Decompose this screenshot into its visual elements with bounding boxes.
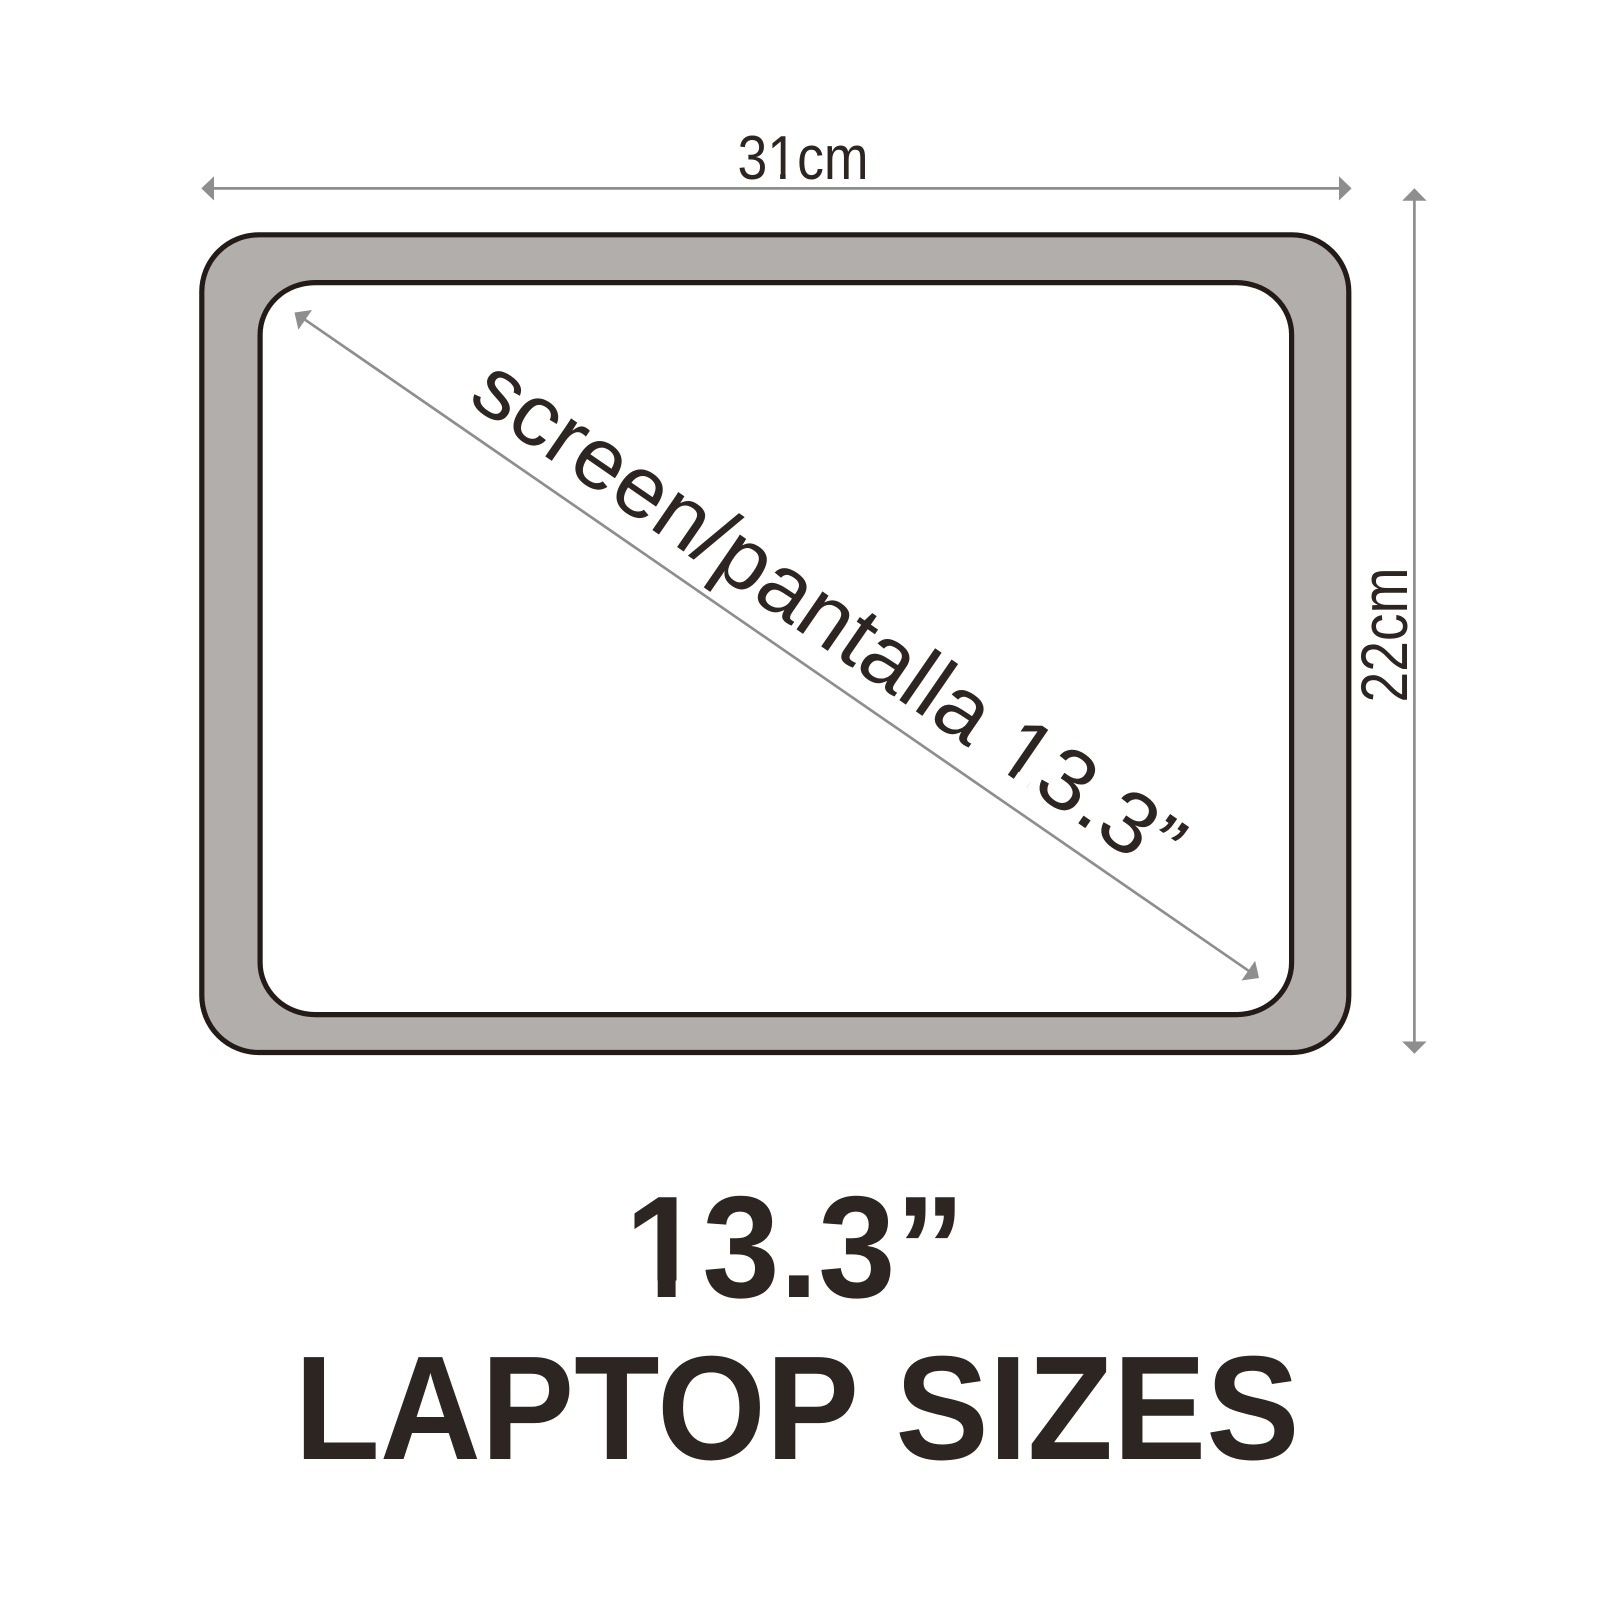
svg-text:LAPTOP SIZES: LAPTOP SIZES xyxy=(295,1326,1300,1491)
svg-text:13.3”: 13.3” xyxy=(625,1166,965,1328)
svg-text:22cm: 22cm xyxy=(1347,568,1421,703)
svg-text:31cm: 31cm xyxy=(738,124,869,193)
